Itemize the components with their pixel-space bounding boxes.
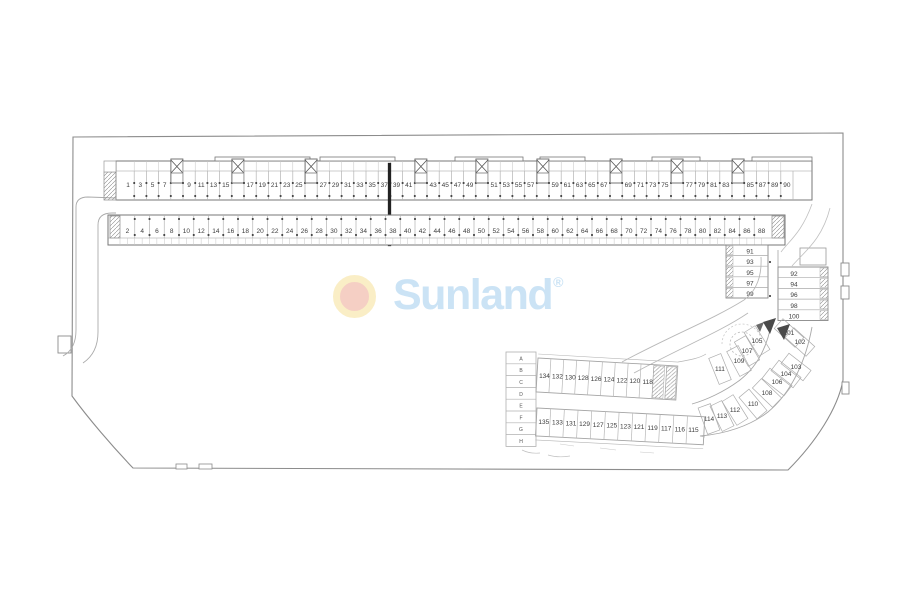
cell-dot [243, 182, 245, 184]
unit-number: 75 [661, 182, 669, 189]
cell-dot [739, 218, 741, 220]
cell-dot [547, 218, 549, 220]
cell-dot [281, 218, 283, 220]
cell-dot [426, 182, 428, 184]
unit-number: 80 [699, 228, 707, 235]
cell-dot [365, 195, 367, 197]
unit-number: 127 [593, 422, 604, 429]
cell-dot [694, 234, 696, 236]
road-curve [634, 313, 748, 373]
cell-dot [724, 234, 726, 236]
cell-dot [268, 195, 270, 197]
unit-number: 65 [588, 182, 596, 189]
cell-dot [267, 218, 269, 220]
unit-number: 77 [686, 182, 694, 189]
cell-dot [756, 182, 758, 184]
band-line [604, 412, 605, 440]
unit-number: 52 [493, 228, 501, 235]
unit-number: 84 [729, 228, 737, 235]
unit-number: 98 [790, 303, 798, 310]
unit-number: 114 [704, 416, 715, 423]
storage-letter: G [519, 427, 523, 433]
unit-number: 78 [684, 228, 692, 235]
cell-dot [473, 234, 475, 236]
unit-number: 104 [781, 371, 792, 378]
unit-number: 110 [748, 401, 759, 408]
cell-dot [267, 234, 269, 236]
unit-number: 82 [714, 228, 722, 235]
cell-dot [524, 182, 526, 184]
cell-dot [292, 195, 294, 197]
hatch-cell [726, 267, 733, 276]
unit-number: 76 [670, 228, 678, 235]
bottom-marker [176, 464, 187, 469]
cell-dot [646, 195, 648, 197]
cell-dot [385, 234, 387, 236]
cell-dot [451, 195, 453, 197]
unit-number: 50 [478, 228, 486, 235]
unit-number: 58 [537, 228, 545, 235]
cell-dot [182, 182, 184, 184]
cell-dot [414, 234, 416, 236]
column-stub [800, 248, 826, 265]
cell-dot [573, 195, 575, 197]
cell-dot [560, 182, 562, 184]
unit-number: 71 [637, 182, 645, 189]
unit-number: 95 [746, 270, 754, 277]
cell-dot [329, 195, 331, 197]
unit-number: 106 [772, 379, 783, 386]
cell-dot [365, 182, 367, 184]
unit-number: 59 [551, 182, 559, 189]
cell-dot [429, 218, 431, 220]
band-cell [665, 366, 677, 399]
cell-dot [658, 195, 660, 197]
cell-dot [414, 195, 416, 197]
bottom-marker [199, 464, 212, 469]
band-edge [700, 436, 705, 437]
unit-number: 92 [790, 271, 798, 278]
unit-number: 96 [790, 292, 798, 299]
cell-dot [444, 234, 446, 236]
cell-dot [255, 182, 257, 184]
cell-dot [780, 195, 782, 197]
cell-dot [193, 218, 195, 220]
band-line [538, 354, 678, 362]
cell-dot [743, 195, 745, 197]
cell-dot [311, 234, 313, 236]
cell-dot [503, 234, 505, 236]
cell-dot [606, 218, 608, 220]
unit-number: 67 [600, 182, 608, 189]
unit-number: 63 [576, 182, 584, 189]
unit-number: 120 [629, 378, 640, 385]
cell-dot [237, 234, 239, 236]
unit-number: 69 [625, 182, 633, 189]
unit-number: 15 [222, 182, 230, 189]
cell-dot [524, 195, 526, 197]
unit-number: 81 [710, 182, 718, 189]
unit-number: 1 [126, 182, 130, 189]
unit-number: 128 [578, 375, 589, 382]
cell-dot [707, 182, 709, 184]
unit-number: 39 [393, 182, 401, 189]
cell-dot [665, 218, 667, 220]
cell-dot [178, 234, 180, 236]
cell-dot [458, 234, 460, 236]
unit-number: 20 [257, 228, 265, 235]
cell-dot [438, 195, 440, 197]
unit-number: 45 [442, 182, 450, 189]
storage-letter: H [519, 439, 523, 445]
unit-number: 11 [198, 182, 205, 189]
storage-letter: D [519, 392, 523, 398]
unit-number: 56 [522, 228, 530, 235]
unit-number: 130 [565, 374, 576, 381]
cell-dot [451, 182, 453, 184]
unit-number: 40 [404, 228, 412, 235]
cell-dot [621, 218, 623, 220]
boundary-gate [841, 286, 849, 299]
cell-dot [252, 234, 254, 236]
cell-dot [268, 182, 270, 184]
unit-number: 109 [734, 358, 745, 365]
unit-number: 4 [140, 228, 144, 235]
row2-endcap [772, 216, 784, 238]
cell-dot [194, 195, 196, 197]
cell-dot [576, 234, 578, 236]
unit-number: 2 [126, 228, 130, 235]
cell-dot [621, 182, 623, 184]
cell-dot [341, 195, 343, 197]
unit-number: 62 [566, 228, 574, 235]
cell-dot [280, 195, 282, 197]
unit-number: 72 [640, 228, 648, 235]
cell-dot [311, 218, 313, 220]
band-line [577, 410, 578, 438]
cell-dot [402, 182, 404, 184]
cell-dot [146, 182, 148, 184]
unit-number: 10 [183, 228, 191, 235]
cell-dot [739, 234, 741, 236]
cell-dot [207, 182, 209, 184]
cell-dot [316, 182, 318, 184]
unit-number: 123 [620, 423, 631, 430]
cell-dot [377, 195, 379, 197]
registered-trademark-icon: ® [553, 274, 563, 290]
cell-dot [296, 218, 298, 220]
sunland-logo: Sunland ® [333, 272, 563, 318]
unit-number: 7 [163, 182, 167, 189]
unit-number: 132 [552, 374, 563, 381]
parapet [320, 157, 395, 161]
cell-dot [426, 195, 428, 197]
unit-number: 17 [246, 182, 254, 189]
cell-dot [219, 195, 221, 197]
unit-number: 100 [789, 314, 800, 321]
unit-number: 118 [643, 379, 654, 386]
unit-number: 27 [320, 182, 328, 189]
unit-number: 102 [795, 339, 806, 346]
unit-number: 31 [344, 182, 352, 189]
cell-dot [296, 234, 298, 236]
unit-number: 8 [170, 228, 174, 235]
unit-number: 103 [791, 364, 802, 371]
cell-dot [548, 182, 550, 184]
cell-dot [512, 195, 514, 197]
cell-dot [517, 234, 519, 236]
hatch-cell [726, 278, 733, 287]
cell-dot [149, 218, 151, 220]
unit-number: 29 [332, 182, 340, 189]
unit-number: 3 [138, 182, 142, 189]
boundary-gate [842, 382, 849, 394]
cell-dot [194, 182, 196, 184]
hatch-cell [820, 268, 828, 277]
cell-dot [473, 218, 475, 220]
cell-dot [709, 218, 711, 220]
unit-number: 121 [634, 424, 645, 431]
unit-number: 53 [503, 182, 511, 189]
unit-number: 41 [405, 182, 413, 189]
unit-number: 21 [271, 182, 279, 189]
unit-number: 16 [227, 228, 235, 235]
unit-number: 51 [490, 182, 498, 189]
hatch-cell [726, 288, 733, 297]
cell-dot [635, 234, 637, 236]
band-line [563, 409, 564, 437]
hatch-cell [820, 289, 828, 298]
unit-number: 70 [625, 228, 633, 235]
cell-dot [743, 182, 745, 184]
cell-dot [444, 218, 446, 220]
cell-dot [488, 234, 490, 236]
cell-dot [591, 234, 593, 236]
cell-dot [399, 218, 401, 220]
unit-number: 73 [649, 182, 657, 189]
cell-dot [133, 182, 135, 184]
unit-number: 38 [389, 228, 397, 235]
road-curve [781, 204, 812, 252]
unit-number: 129 [579, 421, 590, 428]
cell-dot [665, 234, 667, 236]
tree-icon [763, 318, 776, 334]
cell-dot [178, 218, 180, 220]
cell-dot [682, 195, 684, 197]
cell-dot [650, 234, 652, 236]
band-line [645, 414, 646, 442]
unit-number: 85 [747, 182, 755, 189]
cell-dot [621, 195, 623, 197]
cell-dot [163, 218, 165, 220]
cell-dot [222, 234, 224, 236]
unit-number: 79 [698, 182, 706, 189]
unit-number: 112 [730, 407, 741, 414]
unit-number: 43 [429, 182, 437, 189]
unit-number: 60 [552, 228, 560, 235]
cell-dot [149, 234, 151, 236]
cell-dot [163, 234, 165, 236]
cell-dot [768, 182, 770, 184]
unit-number: 89 [771, 182, 779, 189]
row1-endcap [104, 172, 116, 200]
unit-number: 14 [212, 228, 220, 235]
unit-number: 124 [604, 377, 615, 384]
band-line [631, 413, 632, 441]
unit-number: 48 [463, 228, 471, 235]
parapet [455, 157, 523, 161]
unit-number: 36 [375, 228, 383, 235]
sunland-wordmark: Sunland [393, 272, 552, 318]
cell-dot [658, 182, 660, 184]
cell-dot [560, 195, 562, 197]
cell-dot [208, 218, 210, 220]
cell-dot [634, 182, 636, 184]
unit-number: 86 [743, 228, 751, 235]
unit-number: 105 [752, 338, 763, 345]
unit-number: 5 [151, 182, 155, 189]
cell-dot [609, 195, 611, 197]
unit-number: 46 [448, 228, 456, 235]
unit-number: 32 [345, 228, 353, 235]
cell-dot [158, 182, 160, 184]
cell-dot [499, 182, 501, 184]
unit-number: 134 [539, 373, 550, 380]
unit-number: 94 [790, 282, 798, 289]
unit-number: 9 [187, 182, 191, 189]
unit-number: 6 [155, 228, 159, 235]
cell-dot [719, 195, 721, 197]
cell-dot [252, 218, 254, 220]
unit-number: 90 [783, 182, 791, 189]
unit-number: 22 [271, 228, 279, 235]
unit-number: 44 [434, 228, 442, 235]
cell-dot [597, 182, 599, 184]
unit-number: 28 [316, 228, 324, 235]
cell-dot [355, 218, 357, 220]
cell-dot [316, 195, 318, 197]
unit-number: 87 [759, 182, 767, 189]
cell-dot [532, 218, 534, 220]
cell-dot [769, 261, 771, 263]
cell-dot [591, 218, 593, 220]
cell-dot [597, 195, 599, 197]
unit-number: 113 [717, 413, 728, 420]
hatch-cell [726, 257, 733, 266]
cell-dot [709, 234, 711, 236]
cell-dot [487, 195, 489, 197]
row2-endcap [110, 216, 120, 238]
cell-dot [547, 234, 549, 236]
sketch-line [522, 450, 570, 457]
cell-dot [695, 195, 697, 197]
unit-number: 30 [330, 228, 338, 235]
cell-dot [562, 218, 564, 220]
cell-dot [292, 182, 294, 184]
cell-dot [146, 195, 148, 197]
unit-number: 97 [746, 280, 754, 287]
cell-dot [756, 195, 758, 197]
unit-number: 54 [507, 228, 515, 235]
cell-dot [329, 182, 331, 184]
cell-dot [438, 182, 440, 184]
cell-dot [573, 182, 575, 184]
cell-dot [370, 234, 372, 236]
unit-number: 108 [762, 390, 773, 397]
unit-number: 19 [259, 182, 267, 189]
cell-dot [646, 182, 648, 184]
unit-number: 83 [722, 182, 730, 189]
boundary-gate [841, 263, 849, 276]
parapet [215, 157, 310, 161]
cell-dot [634, 195, 636, 197]
unit-number: 13 [210, 182, 218, 189]
band-line [659, 414, 660, 442]
cell-dot [158, 195, 160, 197]
cell-dot [585, 182, 587, 184]
cell-dot [499, 195, 501, 197]
unit-number: 18 [242, 228, 250, 235]
cell-dot [222, 218, 224, 220]
cell-dot [707, 195, 709, 197]
cell-dot [532, 234, 534, 236]
cell-dot [134, 234, 136, 236]
cell-dot [353, 195, 355, 197]
cell-dot [780, 182, 782, 184]
row1-endcap [104, 161, 116, 172]
unit-number: 116 [675, 426, 686, 433]
cell-dot [341, 182, 343, 184]
band-line [549, 409, 550, 437]
cell-dot [243, 195, 245, 197]
unit-number: 107 [742, 348, 753, 355]
cell-dot [536, 195, 538, 197]
unit-number: 33 [356, 182, 364, 189]
cell-dot [475, 195, 477, 197]
unit-number: 122 [616, 377, 627, 384]
cell-dot [680, 218, 682, 220]
cell-dot [326, 234, 328, 236]
cell-dot [719, 182, 721, 184]
cell-dot [548, 195, 550, 197]
cell-dot [768, 195, 770, 197]
cell-dot [585, 195, 587, 197]
cell-dot [670, 195, 672, 197]
cell-dot [208, 234, 210, 236]
unit-number: 37 [381, 182, 389, 189]
storage-letter: F [519, 415, 522, 421]
cell-dot [621, 234, 623, 236]
cell-dot [694, 218, 696, 220]
unit-number: 55 [515, 182, 523, 189]
cell-dot [682, 182, 684, 184]
hatch-cell [820, 311, 828, 320]
unit-number: 12 [198, 228, 206, 235]
unit-number: 49 [466, 182, 474, 189]
unit-number: 68 [611, 228, 619, 235]
cell-dot [370, 218, 372, 220]
unit-number: 91 [746, 249, 754, 256]
cell-dot [237, 218, 239, 220]
cell-dot [769, 295, 771, 297]
cell-dot [463, 195, 465, 197]
cell-dot [340, 218, 342, 220]
cell-dot [255, 195, 257, 197]
cell-dot [695, 182, 697, 184]
cell-dot [377, 182, 379, 184]
band-line [672, 415, 673, 443]
tree-icon [756, 322, 764, 332]
